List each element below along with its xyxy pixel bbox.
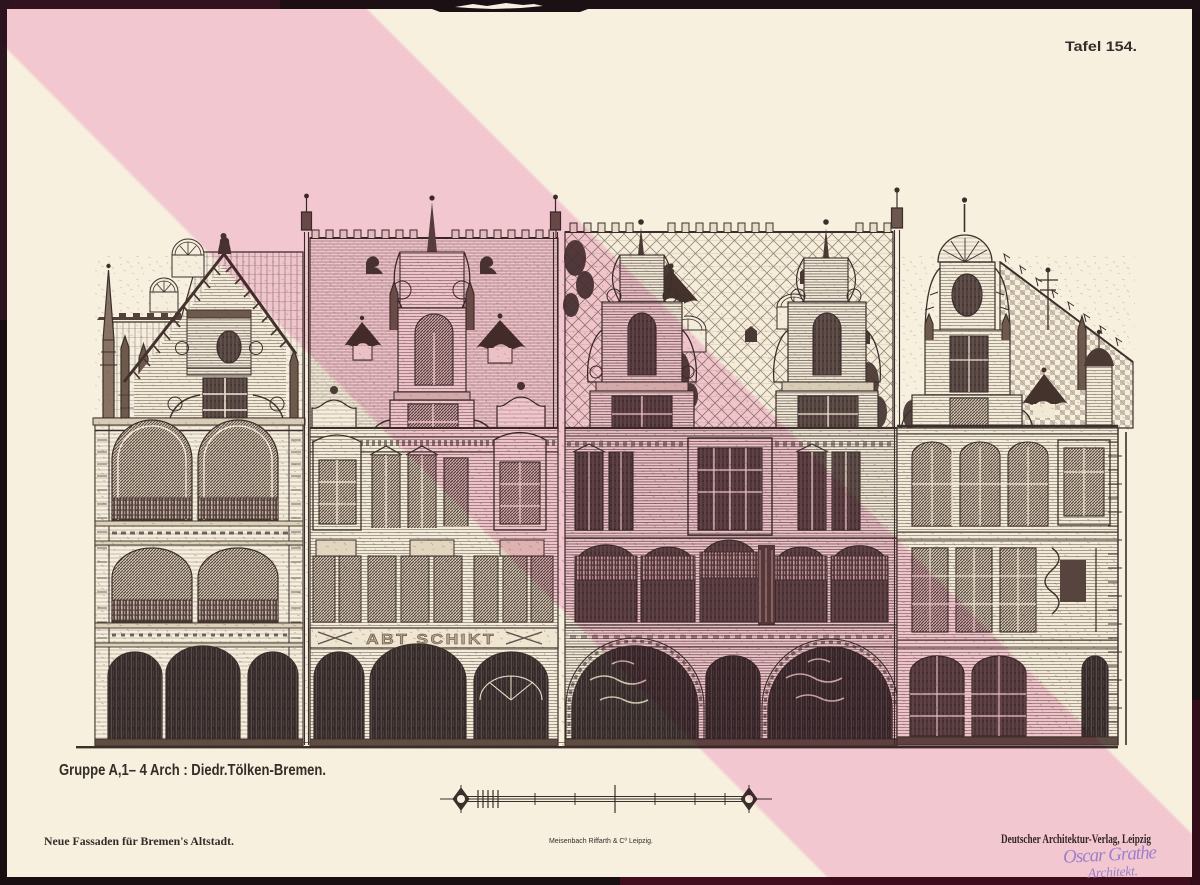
svg-text:Neue Fassaden für Bremen's Alt: Neue Fassaden für Bremen's Altstadt. xyxy=(44,836,234,848)
svg-text:Architekt.: Architekt. xyxy=(1087,863,1139,881)
svg-text:Gruppe A,1– 4 Arch : Diedr.Töl: Gruppe A,1– 4 Arch : Diedr.Tölken-Bremen… xyxy=(59,762,326,779)
svg-text:Tafel 154.: Tafel 154. xyxy=(1065,38,1137,54)
svg-text:Meisenbach Riffarth & Cº Leipz: Meisenbach Riffarth & Cº Leipzig. xyxy=(549,838,653,845)
